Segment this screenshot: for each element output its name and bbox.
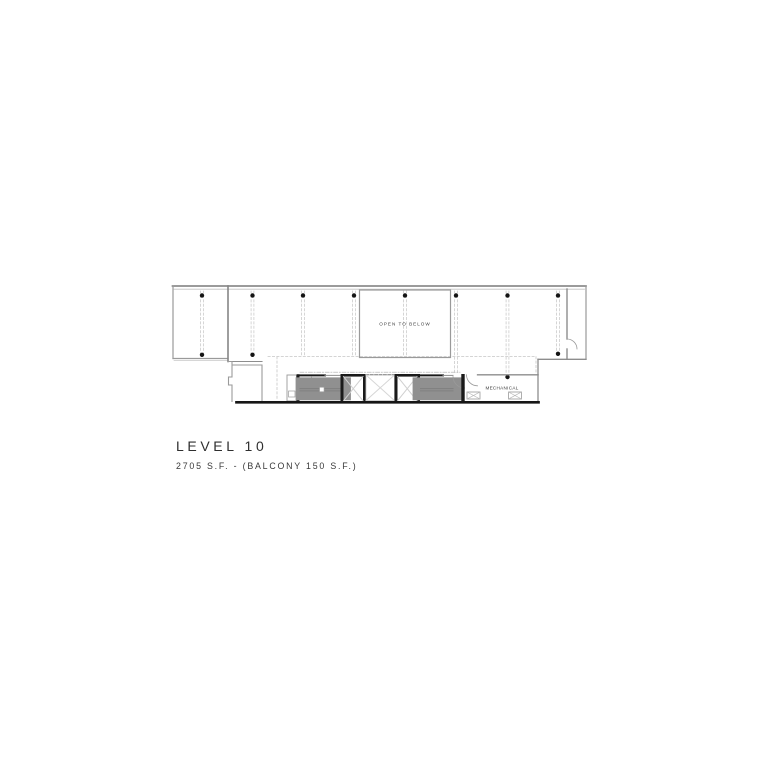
column-dot <box>352 293 356 297</box>
column-dot <box>200 353 204 357</box>
equipment-pad-x <box>467 392 480 399</box>
elevator-wall-left <box>341 374 344 402</box>
column-dot <box>200 293 204 297</box>
plan-area-note: 2705 S.F. - (BALCONY 150 S.F.) <box>176 462 357 471</box>
bay-x <box>366 375 395 401</box>
elevator-lobby-bay <box>366 375 395 401</box>
open-to-below-area: OPEN TO BELOW <box>360 290 451 358</box>
column-dot <box>454 293 458 297</box>
equipment-pads <box>467 392 522 399</box>
column-dot <box>556 293 560 297</box>
elevator-wall-top <box>395 374 421 377</box>
mechanical-label: MECHANICAL <box>485 386 518 391</box>
mechanical-door-swing <box>467 375 478 386</box>
elevator-wall-top <box>341 374 367 377</box>
column-dot <box>403 293 407 297</box>
page-canvas: OPEN TO BELOW <box>0 0 760 760</box>
column-dot <box>505 293 509 297</box>
column-dot <box>301 293 305 297</box>
column-grid-lines <box>201 291 560 373</box>
exterior-walls <box>173 286 587 375</box>
plan-title: LEVEL 10 <box>176 440 357 453</box>
elevator-wall-left <box>395 374 398 402</box>
plan-caption: LEVEL 10 2705 S.F. - (BALCONY 150 S.F.) <box>176 440 357 471</box>
column-dot <box>250 353 254 357</box>
stairwell-west <box>298 375 341 391</box>
stair-east-wall <box>461 374 464 402</box>
floor-plan-drawing: OPEN TO BELOW <box>0 0 760 760</box>
elevator-wall-right <box>363 374 366 402</box>
left-room-walls <box>228 362 262 402</box>
column-dot <box>250 293 254 297</box>
stair-direction-marker <box>320 387 325 392</box>
mechanical-room: MECHANICAL <box>467 375 539 402</box>
equipment-pad-x <box>509 392 522 399</box>
column-dot <box>556 352 560 356</box>
stairwell-east <box>421 374 465 402</box>
closet-fixture <box>289 391 295 397</box>
right-door-swing <box>567 339 577 349</box>
open-to-below-label: OPEN TO BELOW <box>379 322 430 327</box>
column-dot <box>505 375 509 379</box>
